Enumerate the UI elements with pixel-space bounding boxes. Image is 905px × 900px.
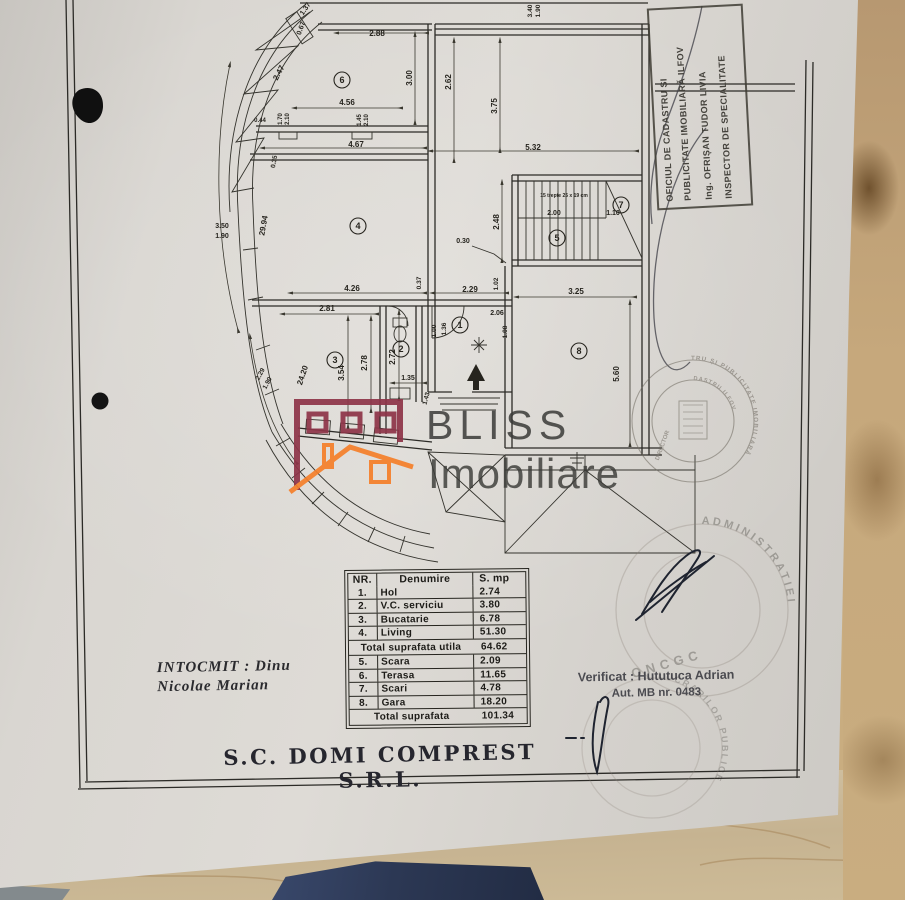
room-number: 6 <box>334 72 350 88</box>
area-table-row: 8.Gara18.20 <box>349 694 526 709</box>
dimension-label: 2.10 <box>285 113 291 125</box>
room-number-text: 7 <box>618 200 623 210</box>
area-table-cell: 18.20 <box>473 695 526 708</box>
stamp-center-text: DIRECTOR <box>655 429 672 461</box>
area-table-cell: V.C. serviciu <box>376 599 472 613</box>
area-table-cell: Hol <box>376 585 472 599</box>
area-table-cell: Total suprafata <box>350 709 474 725</box>
svg-text:ADMINISTRATIEI: ADMINISTRATIEI <box>701 515 797 606</box>
room-number: 3 <box>327 352 343 368</box>
corner-stamp-line: OFICIUL DE CADASTRU ȘI <box>658 78 674 202</box>
intocmit-line1: INTOCMIT : Dinu <box>157 657 291 678</box>
stamp-inner-text: OFICIUL DE CADASTRU ILFOV <box>0 0 737 411</box>
room-number: 5 <box>549 230 565 246</box>
room-number-text: 1 <box>457 320 462 330</box>
verificat-credit: Verificat : Hututuca Adrian Aut. MB nr. … <box>578 667 735 704</box>
area-table-body: 1.Hol2.742.V.C. serviciu3.803.Bucatarie6… <box>348 585 526 725</box>
area-table-cell: Gara <box>377 695 473 709</box>
dimension-label: 2.00 <box>547 210 561 217</box>
dimension-label: 4.67 <box>348 140 364 149</box>
dimension-label: 1.00 <box>431 324 438 337</box>
dimension-label: 15 trepte 25 x 19 cm <box>540 193 588 199</box>
bliss-logo <box>290 402 413 492</box>
dimension-label: 4.26 <box>344 284 360 293</box>
room-number: 1 <box>452 317 468 333</box>
area-table-cell: 2.74 <box>472 585 525 598</box>
room-number-labels: 64753218 <box>327 72 629 368</box>
company-name: S.C. DOMI COMPREST S.R.L. <box>190 738 571 795</box>
room-number-text: 2 <box>398 344 403 354</box>
dimension-label: 2.78 <box>360 355 369 371</box>
area-table-cell: Scara <box>377 655 473 669</box>
dimension-label: 3.25 <box>568 287 584 296</box>
area-table-cell: Bucatarie <box>377 612 473 626</box>
svg-text:OFICIUL DE CADASTRU ILFOV: OFICIUL DE CADASTRU ILFOV <box>0 0 737 411</box>
dimension-label: 2.72 <box>388 349 397 365</box>
dimension-label: 3.00 <box>405 70 414 86</box>
dimension-label: 2.88 <box>369 29 385 38</box>
dimension-label: 3.75 <box>490 98 499 114</box>
area-table-cell: Terasa <box>377 668 473 682</box>
room-number-text: 4 <box>355 221 360 231</box>
verificat-line2: Aut. MB nr. 0483 <box>578 684 735 704</box>
verificat-line1: Verificat : Hututuca Adrian <box>578 668 735 685</box>
area-table-cell: 101.34 <box>474 708 527 723</box>
dimension-label: 1.70 <box>278 113 284 125</box>
area-table-row: 3.Bucatarie6.78 <box>349 611 526 626</box>
area-table-cell: 2.09 <box>473 654 526 667</box>
signature-verificat <box>636 550 714 620</box>
watermark-imobiliare: Imobiliare <box>428 450 620 498</box>
dimension-label: 1.10 <box>606 210 620 217</box>
area-table-cell: Total suprafata utila <box>349 639 473 655</box>
area-table-cell: 3. <box>349 613 377 626</box>
dimension-label: 0.30 <box>456 238 470 245</box>
dimension-label: 3.50 <box>215 223 229 230</box>
room-number-text: 8 <box>576 346 581 356</box>
dimension-label: 1.02 <box>493 277 500 290</box>
watermark-bliss: BLISS <box>426 402 572 449</box>
area-table-cell: 6.78 <box>473 612 526 625</box>
area-table-cell: 3.80 <box>472 598 525 611</box>
dimension-label: 1.08 <box>502 325 509 338</box>
intocmit-line2: Nicolae Marian <box>157 676 291 697</box>
area-table-cell: Living <box>377 626 473 640</box>
area-table-cell: 4. <box>349 627 377 640</box>
area-table-row: 6.Terasa11.65 <box>349 667 526 682</box>
area-table-cell: 5. <box>349 656 377 669</box>
stamp-arc-text: ADMINISTRATIEI <box>701 515 797 606</box>
dimension-label: 3.40 <box>527 4 534 17</box>
dimension-label: 1.90 <box>535 4 542 17</box>
signature-bottom <box>566 697 608 772</box>
area-table-row: Total suprafata utila64.62 <box>349 638 526 655</box>
dimension-label: 1.45 <box>357 114 363 126</box>
dimension-label: 0.44 <box>254 118 266 124</box>
area-table-cell: 2. <box>348 600 376 613</box>
area-table-cell: 51.30 <box>473 625 526 638</box>
corner-stamp-line: Ing. OFRIȘAN TUDOR LIVIA <box>697 71 714 200</box>
area-table-header-nr: NR. <box>348 574 376 587</box>
area-table-row: 7.Scari4.78 <box>349 680 526 695</box>
dimension-label: 29.94 <box>257 214 269 236</box>
intocmit-credit: INTOCMIT : Dinu Nicolae Marian <box>157 657 292 697</box>
dimension-label: 0.37 <box>416 276 423 289</box>
room-number: 7 <box>613 197 629 213</box>
corner-stamp-box: OFICIUL DE CADASTRU ȘI PUBLICITATE IMOBI… <box>647 4 753 211</box>
dimension-label: 5.32 <box>525 143 541 152</box>
area-table-row: 5.Scara2.09 <box>349 653 526 668</box>
dimension-label: 1.35 <box>401 375 415 382</box>
dimension-label: 2.48 <box>492 214 501 230</box>
area-table-row: 1.Hol2.74 <box>348 585 525 599</box>
area-table-cell: 11.65 <box>473 668 526 681</box>
entrance-arrow <box>467 364 485 390</box>
area-table-row: Total suprafata101.34 <box>350 707 527 724</box>
area-table: NR. Denumire S. mp 1.Hol2.742.V.C. servi… <box>347 571 528 725</box>
dimension-label: 2.47 <box>271 63 287 81</box>
corner-stamp-line: PUBLICITATE IMOBILIARĂ ILFOV <box>675 46 693 201</box>
dimension-labels: 1.370.672.882.473.002.623.753.401.904.56… <box>215 1 621 405</box>
dimension-label: 5.60 <box>612 366 621 382</box>
document-paper: 1.370.672.882.473.002.623.753.401.904.56… <box>0 0 905 900</box>
room-number-text: 5 <box>554 233 559 243</box>
room-number-text: 6 <box>339 75 344 85</box>
dimension-label: 2.29 <box>462 285 478 294</box>
area-table-row: 4.Living51.30 <box>349 624 526 639</box>
dimension-label: 1.90 <box>215 233 229 240</box>
area-table-header-name: Denumire <box>376 573 472 587</box>
room-number: 8 <box>571 343 587 359</box>
photo-scene: 1.370.672.882.473.002.623.753.401.904.56… <box>0 0 905 900</box>
dimension-label: 1.37 <box>299 1 313 16</box>
dimension-label: 1.36 <box>441 322 448 335</box>
dimension-label: 2.10 <box>364 114 370 126</box>
area-table-cell: 4.78 <box>473 681 526 694</box>
dimension-label: 4.56 <box>339 98 355 107</box>
area-table-cell: 64.62 <box>473 639 526 654</box>
room-number: 2 <box>393 341 409 357</box>
area-table-cell: 8. <box>349 696 377 709</box>
corner-stamp-line: INSPECTOR DE SPECIALITATE <box>716 55 733 199</box>
dimension-label: 0.35 <box>270 155 279 169</box>
dimension-label: 2.06 <box>490 310 504 317</box>
area-table-cell: 1. <box>348 586 376 599</box>
area-table-cell: 6. <box>349 669 377 682</box>
area-table-cell: Scari <box>377 682 473 696</box>
room-number-text: 3 <box>332 355 337 365</box>
dimension-label: 2.81 <box>319 304 335 313</box>
area-table-cell: 7. <box>349 683 377 696</box>
area-table-header-mp: S. mp <box>472 572 525 585</box>
dimension-label: 2.62 <box>444 74 453 90</box>
room-number: 4 <box>350 218 366 234</box>
area-table-row: 2.V.C. serviciu3.80 <box>348 597 525 612</box>
dimension-label: 24.20 <box>295 364 310 386</box>
